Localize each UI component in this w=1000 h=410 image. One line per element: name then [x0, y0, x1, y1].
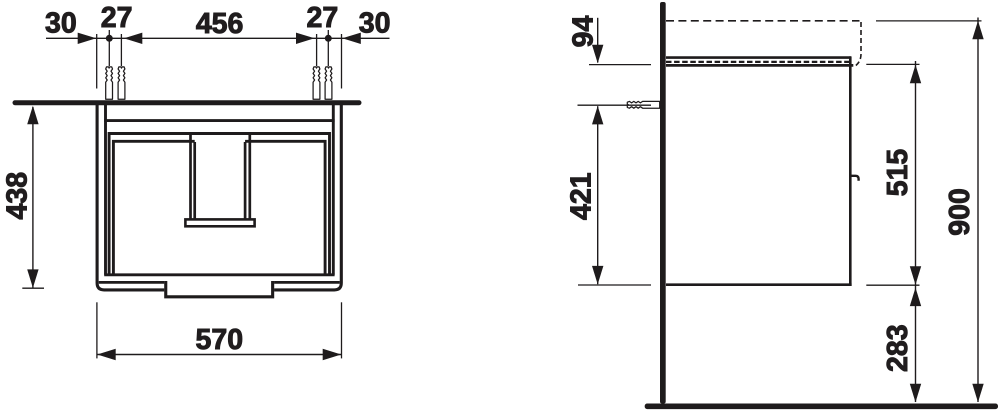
svg-text:94: 94 — [567, 16, 599, 48]
svg-text:421: 421 — [565, 172, 597, 220]
svg-text:438: 438 — [2, 172, 34, 220]
svg-text:27: 27 — [101, 2, 133, 34]
svg-text:30: 30 — [359, 7, 391, 39]
svg-text:283: 283 — [882, 324, 914, 372]
svg-text:30: 30 — [45, 7, 77, 39]
svg-text:27: 27 — [307, 2, 339, 34]
svg-text:570: 570 — [196, 324, 244, 356]
svg-text:900: 900 — [944, 188, 976, 236]
svg-text:515: 515 — [882, 149, 914, 197]
svg-text:456: 456 — [196, 8, 244, 40]
